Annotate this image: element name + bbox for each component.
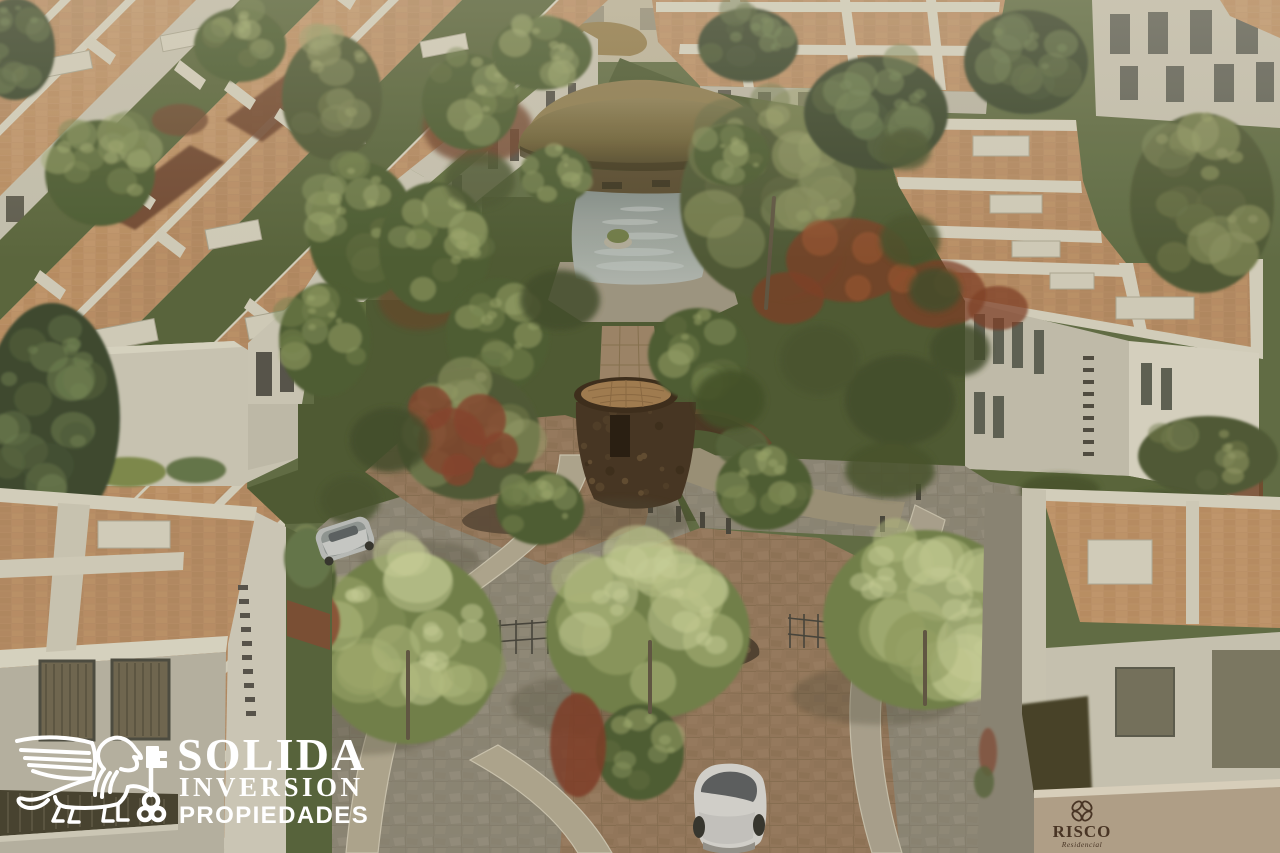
svg-text:PROPIEDADES: PROPIEDADES [179, 802, 369, 829]
svg-text:INVERSION: INVERSION [179, 772, 364, 802]
